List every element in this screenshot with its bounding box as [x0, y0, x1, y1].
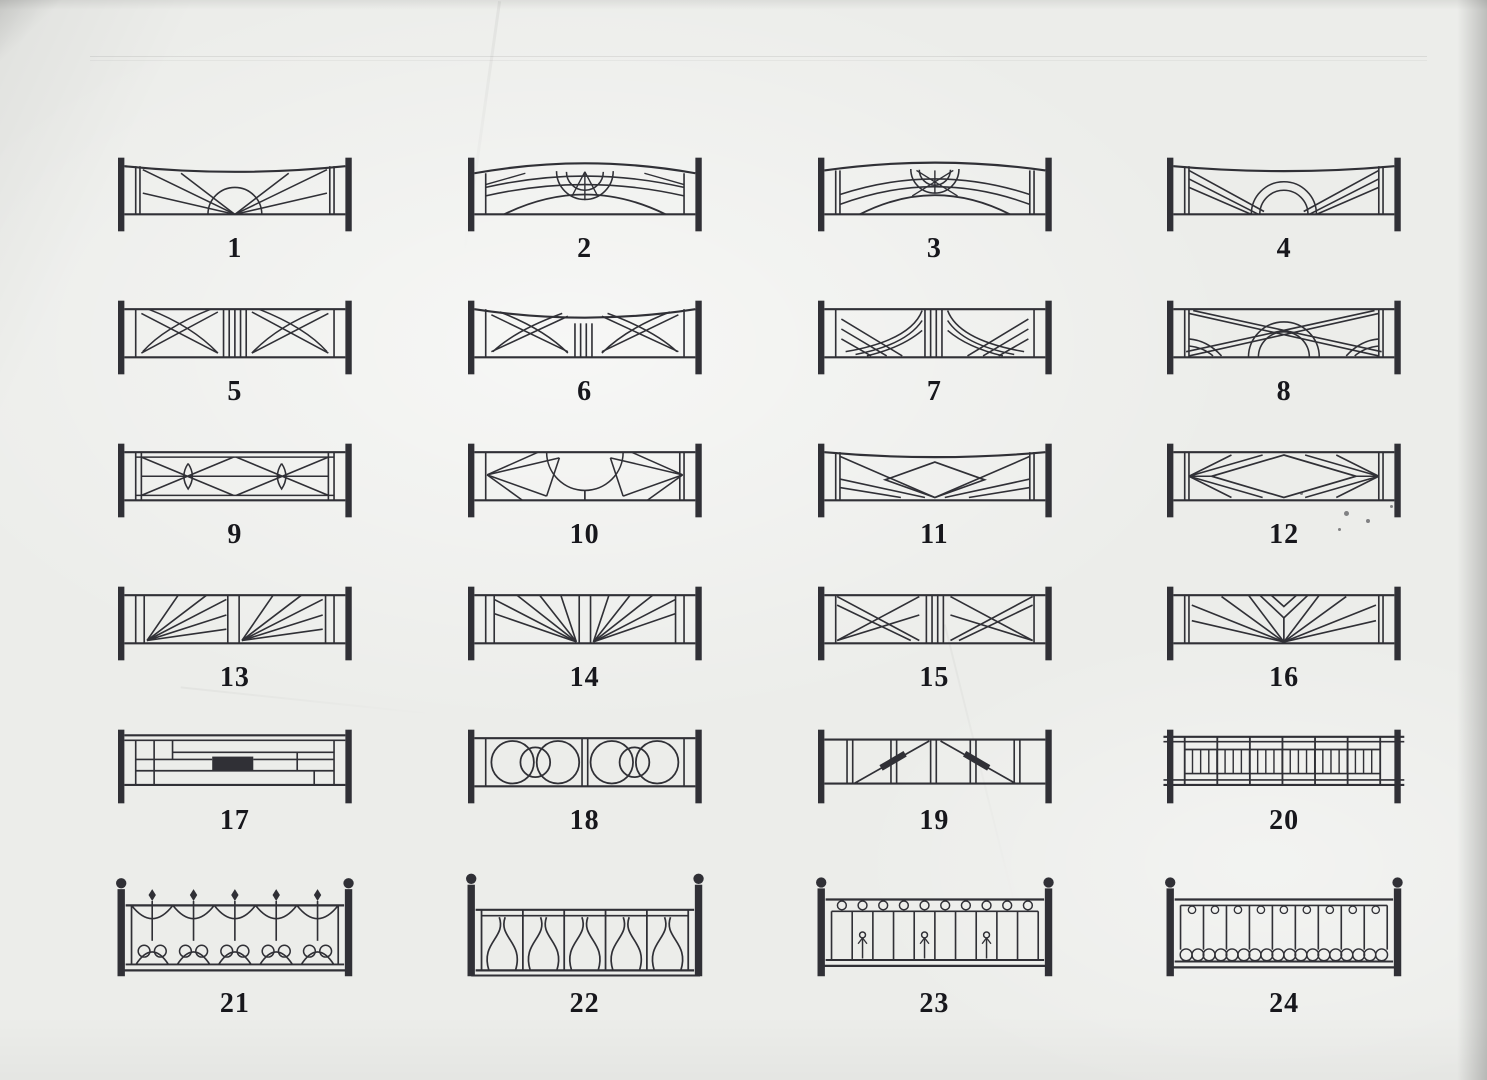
fence-figure: 1 [102, 152, 368, 263]
scan-artifact-line [90, 60, 1427, 61]
fence-figure: 20 [1151, 724, 1417, 835]
fence-figure: 2 [452, 152, 718, 263]
fence-design-23 [802, 867, 1068, 992]
fence-design-10 [452, 438, 718, 523]
fence-design-13 [102, 581, 368, 666]
fence-figure: 9 [102, 438, 368, 549]
figure-number: 4 [1277, 235, 1292, 263]
fence-figure: 3 [802, 152, 1068, 263]
fence-figure: 10 [452, 438, 718, 549]
figure-number: 2 [577, 235, 592, 263]
fence-design-22 [452, 867, 718, 992]
fence-figure: 19 [802, 724, 1068, 835]
fence-figure: 4 [1151, 152, 1417, 263]
fence-design-20 [1151, 724, 1417, 809]
fence-design-24 [1151, 867, 1417, 992]
figure-number: 18 [570, 807, 600, 835]
fence-figure: 6 [452, 295, 718, 406]
fence-figure: 21 [102, 867, 368, 1018]
fence-figure: 24 [1151, 867, 1417, 1018]
fence-figure: 14 [452, 581, 718, 692]
fence-design-8 [1151, 295, 1417, 380]
figure-number: 5 [227, 378, 242, 406]
figure-number: 20 [1269, 807, 1299, 835]
fence-design-14 [452, 581, 718, 666]
figure-number: 1 [227, 235, 242, 263]
fence-figure: 23 [802, 867, 1068, 1018]
scan-edge-shadow [1457, 0, 1487, 1080]
figure-number: 16 [1269, 664, 1299, 692]
scan-artifact-line [90, 56, 1427, 57]
fence-figure: 11 [802, 438, 1068, 549]
fence-design-11 [802, 438, 1068, 523]
figure-number: 14 [570, 664, 600, 692]
fence-design-17 [102, 724, 368, 809]
fence-design-18 [452, 724, 718, 809]
fence-design-19 [802, 724, 1068, 809]
figure-number: 24 [1269, 990, 1299, 1018]
fence-figure: 13 [102, 581, 368, 692]
fence-figure: 12 [1151, 438, 1417, 549]
fence-figure: 16 [1151, 581, 1417, 692]
figure-number: 21 [220, 990, 250, 1018]
fence-figure: 8 [1151, 295, 1417, 406]
scanned-paper: 1 2 3 4 5 6 7 8 [0, 0, 1487, 1080]
fence-design-3 [802, 152, 1068, 237]
figure-number: 23 [919, 990, 949, 1018]
fence-figure: 15 [802, 581, 1068, 692]
fence-design-4 [1151, 152, 1417, 237]
figure-number: 3 [927, 235, 942, 263]
fence-figure: 5 [102, 295, 368, 406]
scan-edge-shadow [0, 0, 1487, 10]
figure-number: 17 [220, 807, 250, 835]
fence-design-5 [102, 295, 368, 380]
fence-design-7 [802, 295, 1068, 380]
figure-number: 9 [227, 521, 242, 549]
figure-number: 15 [919, 664, 949, 692]
figure-number: 10 [570, 521, 600, 549]
fence-design-2 [452, 152, 718, 237]
scan-corner-shadow [0, 0, 70, 70]
fence-figure: 17 [102, 724, 368, 835]
fence-design-15 [802, 581, 1068, 666]
figure-number: 12 [1269, 521, 1299, 549]
figure-number: 22 [570, 990, 600, 1018]
fence-design-12 [1151, 438, 1417, 523]
fence-design-catalog: 1 2 3 4 5 6 7 8 [62, 136, 1457, 1034]
fence-design-16 [1151, 581, 1417, 666]
fence-figure: 7 [802, 295, 1068, 406]
fence-design-9 [102, 438, 368, 523]
figure-number: 6 [577, 378, 592, 406]
fence-design-6 [452, 295, 718, 380]
fence-figure: 18 [452, 724, 718, 835]
fence-figure: 22 [452, 867, 718, 1018]
figure-number: 19 [919, 807, 949, 835]
fence-design-1 [102, 152, 368, 237]
figure-number: 11 [920, 521, 948, 549]
figure-number: 7 [927, 378, 942, 406]
figure-number: 13 [220, 664, 250, 692]
fence-design-21 [102, 867, 368, 992]
figure-number: 8 [1277, 378, 1292, 406]
